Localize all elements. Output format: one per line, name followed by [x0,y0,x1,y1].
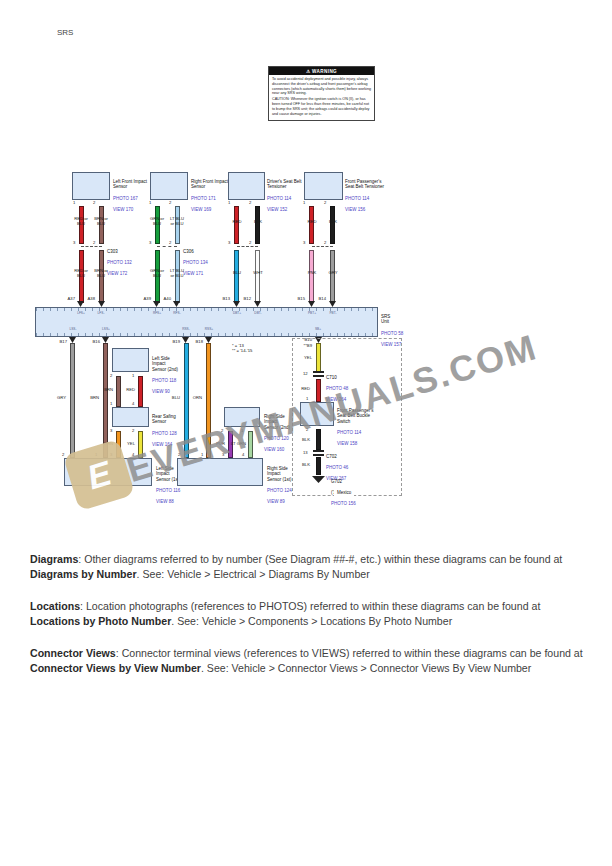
wire-label: BRN or BLU [91,217,111,227]
view-ref: VIEW 169 [191,207,228,213]
caution-text: CAUTION: Whenever the ignition switch is… [269,97,374,119]
connector-views-bold: Connector Views [30,647,116,659]
connector-views-by-view-bold: Connector Views by View Number [30,662,201,674]
bus-terminal-label: SB+ [308,327,328,331]
terminal-pin: A38 [82,296,95,301]
warning-header: ⚠ WARNING [269,67,374,75]
connector-c702 [313,450,324,456]
pin-number: 12 [303,371,308,376]
pin-number: 1 [73,200,75,205]
photo-ref: PHOTO 46 [326,465,348,471]
component-name: Left Front Impact Sensor [113,179,147,190]
wire-gry [70,343,75,458]
warning-box: ⚠ WARNING To avoid accidental deployment… [268,66,375,121]
view-ref: VIEW 158 [337,441,373,447]
left-side-impact-sensor-2nd-label: Left Side Impact Sensor (2nd) PHOTO 118 … [152,350,178,401]
wire-label: RED or BLU [71,269,91,279]
pin-number: 3 [149,240,151,245]
footer-notes: Diagrams: Other diagrams referred to by … [30,552,588,693]
terminal-pin: B17 [51,339,67,344]
connector-name: C306 [183,249,208,255]
bus-terminal-label: DBT- [248,311,268,315]
bus-terminal-label: LSS- [63,327,83,331]
connector-name: C702 [326,454,348,460]
bus-terminal-label: LSS+ [96,327,116,331]
pin-number: 2 [169,200,171,205]
connector-views-text: : Connector terminal views (references t… [116,647,583,659]
terminal-pin: B16 [84,339,100,344]
wire-gry [330,250,335,303]
wire-label: BLK [286,463,310,468]
wire-red [309,206,314,244]
wire-label: PNK [302,271,322,276]
view-ref: VIEW 88 [156,499,181,505]
photo-ref: PHOTO 118 [152,378,178,384]
pin-number: 3 [110,428,112,433]
wire-label: BLU [227,271,247,276]
component-name: Front Passenger's Seat Belt Tensioner [345,179,384,190]
pin-number: 4 [132,401,134,406]
right-front-impact-sensor-box [150,172,188,200]
photo-ref: PHOTO 171 [191,196,228,202]
terminal-pin: A40 [158,296,171,301]
component-name: Left Side Impact Sensor (2nd) [152,356,178,373]
view-ref: VIEW 90 [152,389,178,395]
drivers-seat-belt-tensioner-label: Driver's Seat Belt Tensioner PHOTO 114 V… [267,173,302,218]
wire-label: RED [286,387,310,392]
ground-name: G702 [331,479,356,485]
photo-ref: PHOTO 114 [267,196,302,202]
locations-by-photo-bold: Locations by Photo Number [30,615,171,627]
photo-ref: PHOTO 167 [113,196,147,202]
warning-text: To avoid accidental deployment and possi… [269,75,374,97]
pin-number: 2 [110,373,112,378]
connector-name: C303 [107,249,132,255]
wire-wht [255,250,260,303]
diagrams-by-number-bold: Diagrams by Number [30,568,137,580]
wire-label: GRN or BLU [147,217,167,227]
left-front-impact-sensor-label: Left Front Impact Sensor PHOTO 167 VIEW … [113,173,147,218]
pin-number: 2 [62,452,64,457]
wire-red [234,206,239,244]
wire-label: GRY [323,271,343,276]
wire-label: BRN [77,396,99,401]
bus-terminal-label: DBT+ [227,311,247,315]
photo-ref: PHOTO 134 [183,260,208,266]
wire-label: LT BLU or BLU [167,217,187,227]
left-front-impact-sensor-box [72,172,110,200]
photo-ref: PHOTO 58 [381,331,403,337]
pin-number: 3 [303,240,305,245]
left-side-impact-sensor-2nd-box [112,348,149,372]
wire-blk [330,206,335,244]
terminal-pin: B18 [187,339,203,344]
photo-ref: PHOTO 114 [345,196,384,202]
pin-number: 1 [132,373,134,378]
wire-label: WHT [248,271,268,276]
bus-terminal-label: RSS- [176,327,196,331]
bus-terminal-label: RSS+ [199,327,219,331]
drivers-seat-belt-tensioner-box [228,172,265,200]
bus-terminal-label: LFS- [91,311,111,315]
view-ref: VIEW 152 [267,207,302,213]
region-caption: Mexico [334,490,354,496]
wire-blk [316,457,321,475]
locations-note: Locations: Location photographs (referen… [30,599,588,629]
inline-connector-dash [312,246,333,247]
diagrams-note-text: : Other diagrams referred to by number (… [78,553,562,565]
terminal-pin: B19 [164,339,180,344]
logo-glyph: E [82,453,115,497]
front-passengers-seat-belt-tensioner-label: Front Passenger's Seat Belt Tensioner PH… [345,173,384,218]
photo-ref: PHOTO 124 [267,488,292,494]
component-name: Driver's Seat Belt Tensioner [267,179,302,190]
pin-number: 13 [303,450,308,455]
wire-label: BLK [248,220,268,225]
locations-note-path: . See: Vehicle > Components > Locations … [171,615,452,627]
component-name: Right Side Impact Sensor (1st) [267,466,292,483]
bus-terminal-label: PBT+ [302,311,322,315]
wire-blk [255,206,260,244]
pin-number: 2 [249,200,251,205]
bus-terminal-label: PBT- [323,311,343,315]
view-ref: VIEW 89 [267,499,292,505]
photo-ref: PHOTO 114 [337,430,373,436]
wire-label: GRN or BLU [147,269,167,279]
photo-ref: PHOTO 116 [156,488,181,494]
diagrams-note-path: . See: Vehicle > Electrical > Diagrams B… [137,568,370,580]
component-name: Rear Safing Sensor [152,414,177,425]
view-ref: VIEW 156 [345,207,384,213]
connector-views-note: Connector Views: Connector terminal view… [30,646,588,676]
photo-ref: PHOTO 156 [331,501,356,507]
wire-red [138,376,143,407]
pin-number: 2 [93,240,95,245]
locations-note-bold: Locations [30,600,80,612]
bus-terminal-label: LFS+ [71,311,91,315]
wire-label: LT BLU or BLU [167,269,187,279]
wire-label: RED [227,220,247,225]
pin-number: 2 [93,200,95,205]
component-name: SRS Unit [381,314,403,325]
component-name: Right Front Impact Sensor [191,179,228,190]
wire-label: ORN [180,396,202,401]
terminal-pin: A39 [138,296,151,301]
rear-safing-sensor-box [112,407,149,427]
pin-number: 2 [169,240,171,245]
pin-number: 2 [249,240,251,245]
bus-terminal-label: RFS- [167,311,187,315]
bus-terminal-label: RFS+ [147,311,167,315]
pin-number: 2 [324,240,326,245]
terminal-pin: B12 [238,296,251,301]
locations-note-text: : Location photographs (references to PH… [80,600,540,612]
manual-page: SRS ⚠ WARNING To avoid accidental deploy… [0,0,612,866]
terminal-pin: B15 [292,296,305,301]
wire-label: BRN [92,388,113,393]
wire-label: RED [302,220,322,225]
pin-number: 1 [149,200,151,205]
view-ref: VIEW 170 [113,207,147,213]
page-title: SRS [57,28,73,37]
pin-number: 2 [132,428,134,433]
pin-number: 3 [228,240,230,245]
wire-label: GRY [46,396,66,401]
right-front-impact-sensor-label: Right Front Impact Sensor PHOTO 171 VIEW… [191,173,228,218]
diagrams-note: Diagrams: Other diagrams referred to by … [30,552,588,582]
wire-label: BRN or BLU [91,269,111,279]
terminal-pin: B13 [217,296,230,301]
terminal-pin: B14 [313,296,326,301]
footnotes: * = '13 ** = '14-'15 [232,343,252,354]
wire-label: BLK [323,220,343,225]
pin-number: 1 [110,401,112,406]
wire-label: RED or BLU [71,217,91,227]
warning-title: WARNING [312,69,337,74]
front-passengers-seat-belt-tensioner-box [304,172,343,200]
terminal-pin: A37 [62,296,75,301]
diagrams-note-bold: Diagrams [30,553,78,565]
photo-ref: PHOTO 132 [107,260,132,266]
pin-number: 3 [73,240,75,245]
wire-label: RED [114,388,135,393]
connector-c710 [313,371,324,377]
connector-views-path: . See: Vehicle > Connector Views > Conne… [201,662,531,674]
pin-number: 1 [303,200,305,205]
pin-number: 2 [324,200,326,205]
inline-connector-dash [157,246,177,247]
pin-number: 1 [228,200,230,205]
connector-name: C710 [326,375,348,381]
inline-connector-dash [237,246,258,247]
inline-connector-dash [81,246,102,247]
